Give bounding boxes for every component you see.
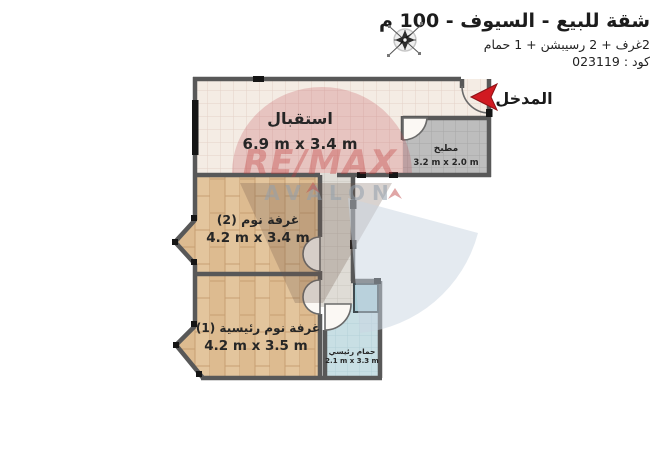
- reception-label: استقبال: [267, 109, 333, 128]
- bedroom2-label: غرفة نوم (2): [217, 212, 300, 228]
- bathroom-dims: 2.1 m x 3.3 m: [325, 357, 379, 365]
- master-bedroom-label: غرفة نوم رئيسية (1): [196, 321, 320, 336]
- reception-dims: 6.9 m x 3.4 m: [243, 135, 358, 153]
- bathroom-label: حمام رئيسي: [329, 347, 376, 356]
- reception-window: [192, 100, 199, 155]
- watermark-avalon-text: AVALON: [264, 181, 396, 205]
- floorplan-page: شقة للبيع - السيوف - 100 م 2غرف + 2 رسيب…: [0, 0, 668, 452]
- kitchen-label: مطبخ: [434, 144, 459, 154]
- watermark-fan: [348, 198, 478, 333]
- bedroom2-dims: 4.2 m x 3.4 m: [206, 230, 309, 246]
- floor-plan: RE/MAX AVALON المدخل استقبال 6.9 m x 3.4…: [0, 0, 668, 452]
- kitchen-dims: 3.2 m x 2.0 m: [413, 158, 478, 168]
- entrance-label: المدخل: [495, 89, 552, 108]
- master-bedroom-dims: 4.2 m x 3.5 m: [204, 338, 307, 354]
